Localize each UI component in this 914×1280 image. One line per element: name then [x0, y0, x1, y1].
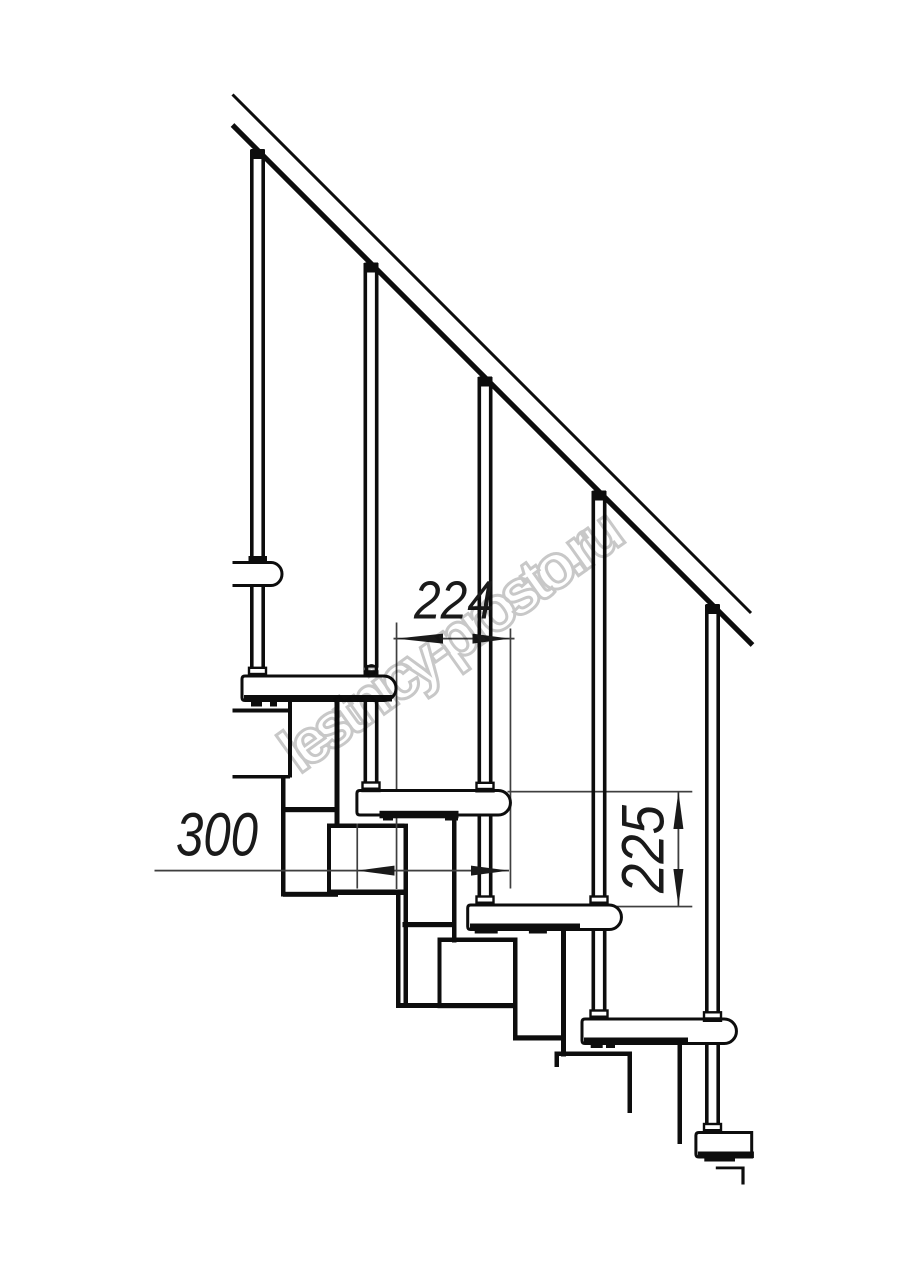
- svg-text:300: 300: [176, 801, 258, 869]
- svg-text:225: 225: [610, 804, 677, 893]
